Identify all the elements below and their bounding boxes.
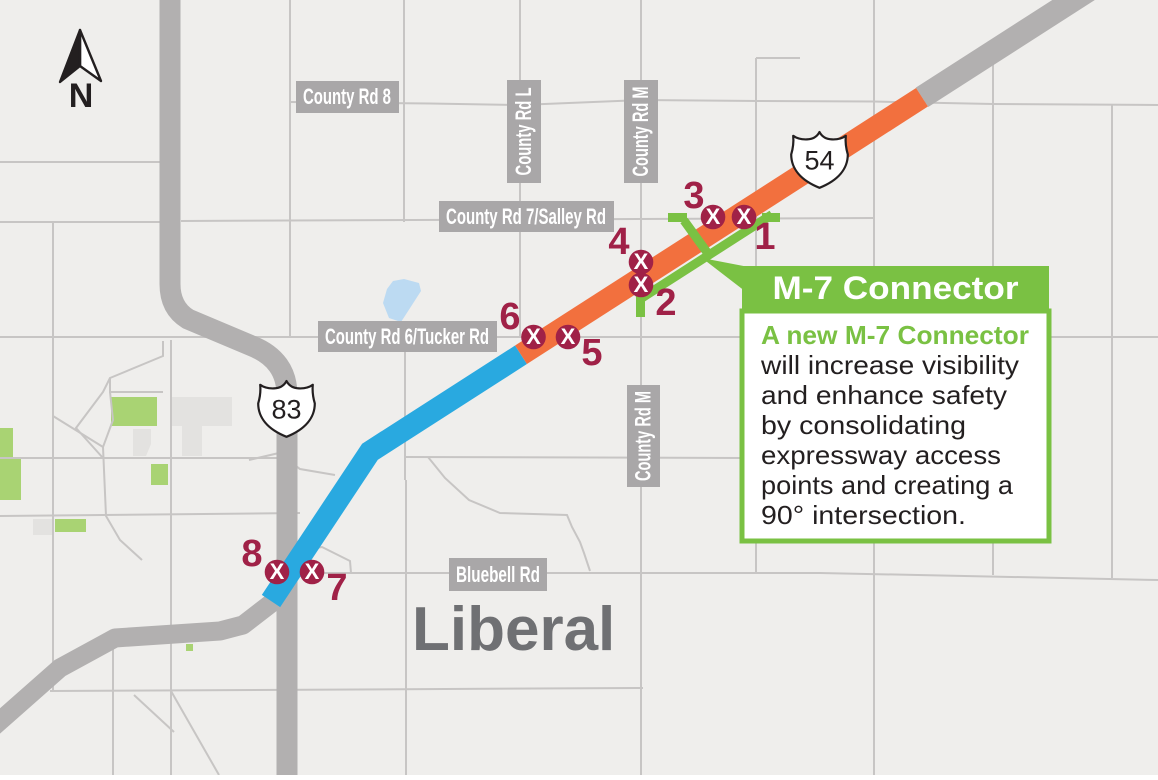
svg-text:M-7 Connector: M-7 Connector	[773, 270, 1019, 306]
svg-text:N: N	[69, 77, 94, 115]
svg-text:X: X	[634, 272, 649, 297]
svg-text:X: X	[305, 559, 320, 584]
svg-text:points and creating a: points and creating a	[761, 470, 1014, 500]
svg-text:A new M-7 Connector: A new M-7 Connector	[761, 320, 1029, 350]
svg-text:54: 54	[804, 146, 834, 176]
svg-text:by consolidating: by consolidating	[761, 410, 966, 440]
svg-text:Bluebell Rd: Bluebell Rd	[456, 562, 540, 587]
svg-text:expressway access: expressway access	[761, 440, 1001, 470]
svg-text:County Rd 6/Tucker Rd: County Rd 6/Tucker Rd	[325, 324, 489, 349]
svg-text:2: 2	[655, 282, 676, 324]
svg-text:7: 7	[326, 567, 347, 609]
svg-text:X: X	[634, 249, 649, 274]
svg-text:X: X	[561, 324, 576, 349]
svg-text:X: X	[706, 204, 721, 229]
svg-text:X: X	[737, 204, 752, 229]
svg-text:County Rd 8: County Rd 8	[303, 84, 391, 109]
svg-text:Liberal: Liberal	[412, 595, 615, 664]
svg-text:County Rd M: County Rd M	[631, 391, 656, 481]
svg-text:8: 8	[241, 533, 262, 575]
svg-text:3: 3	[683, 175, 704, 217]
svg-text:83: 83	[271, 395, 301, 425]
svg-text:X: X	[526, 324, 541, 349]
svg-text:4: 4	[608, 221, 629, 263]
svg-text:will increase visibility: will increase visibility	[760, 350, 1019, 380]
svg-text:County Rd L: County Rd L	[511, 88, 536, 176]
svg-text:X: X	[270, 559, 285, 584]
svg-text:90° intersection.: 90° intersection.	[761, 500, 966, 530]
svg-text:County Rd 7/Salley Rd: County Rd 7/Salley Rd	[446, 204, 606, 229]
svg-text:5: 5	[581, 332, 602, 374]
svg-text:6: 6	[499, 296, 520, 338]
svg-text:County Rd M: County Rd M	[628, 87, 653, 177]
svg-text:and enhance safety: and enhance safety	[761, 380, 1007, 410]
svg-text:1: 1	[754, 216, 775, 258]
